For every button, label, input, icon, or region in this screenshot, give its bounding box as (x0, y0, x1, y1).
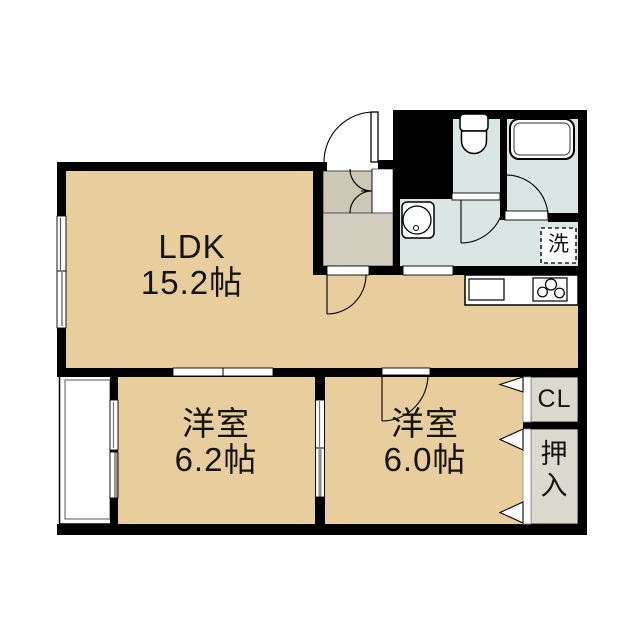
oshiire-label: 押入 (538, 439, 570, 503)
closet-label: CL (531, 386, 578, 413)
balcony (60, 375, 114, 525)
bath-door-bar (505, 211, 548, 220)
floor-plan: LDK 15.2帖 洋室 6.2帖 洋室 6.0帖 CL 押入 洗 (0, 0, 640, 640)
bedroom-right-size: 6.0帖 (326, 442, 524, 478)
wall-ldk-top (57, 162, 327, 171)
toilet-bowl (462, 131, 487, 154)
toilet-tank (460, 114, 488, 131)
wall-right (578, 110, 587, 535)
entry-door-leaf (371, 112, 378, 162)
wall-bottom (57, 524, 587, 535)
washroom-opening (403, 266, 453, 275)
partition-sash-shaded (319, 449, 322, 497)
laundry-label: 洗 (541, 234, 576, 257)
cl-door-strip (523, 377, 531, 422)
stove-burner (538, 287, 548, 297)
bedroom-right-door-bar (382, 368, 430, 375)
bathtub (510, 119, 574, 159)
toilet-door-bar (452, 193, 500, 200)
stove-burner (546, 279, 557, 290)
bedroom-left-name: 洋室 (117, 406, 315, 442)
wall-bath-bottom (548, 213, 578, 222)
wall-hall-left (313, 162, 323, 275)
genkan-step (372, 169, 393, 213)
wall-cl-oshiire (523, 422, 587, 429)
oshiire-door-strip (523, 429, 531, 524)
stove-burner (555, 288, 565, 298)
ldk-name: LDK (92, 229, 292, 265)
ldk-label: LDK 15.2帖 (92, 229, 292, 300)
entry-door-arc (324, 112, 374, 162)
ldk-size: 15.2帖 (92, 265, 292, 301)
bedroom-left-size: 6.2帖 (117, 442, 315, 478)
bedroom-right-name: 洋室 (326, 406, 524, 442)
hall-ldk-door-bar (327, 266, 369, 275)
bedroom-left-label: 洋室 6.2帖 (117, 406, 315, 477)
floor-plan-drawing (0, 0, 640, 640)
wall-entry-stub (378, 160, 394, 169)
wall-washroom-left (393, 199, 400, 275)
kitchen-sink (469, 279, 504, 300)
bedroom-right-label: 洋室 6.0帖 (326, 406, 524, 477)
hall-floor (323, 213, 393, 266)
shaft-void (393, 110, 453, 199)
washbasin-drain (414, 226, 419, 231)
